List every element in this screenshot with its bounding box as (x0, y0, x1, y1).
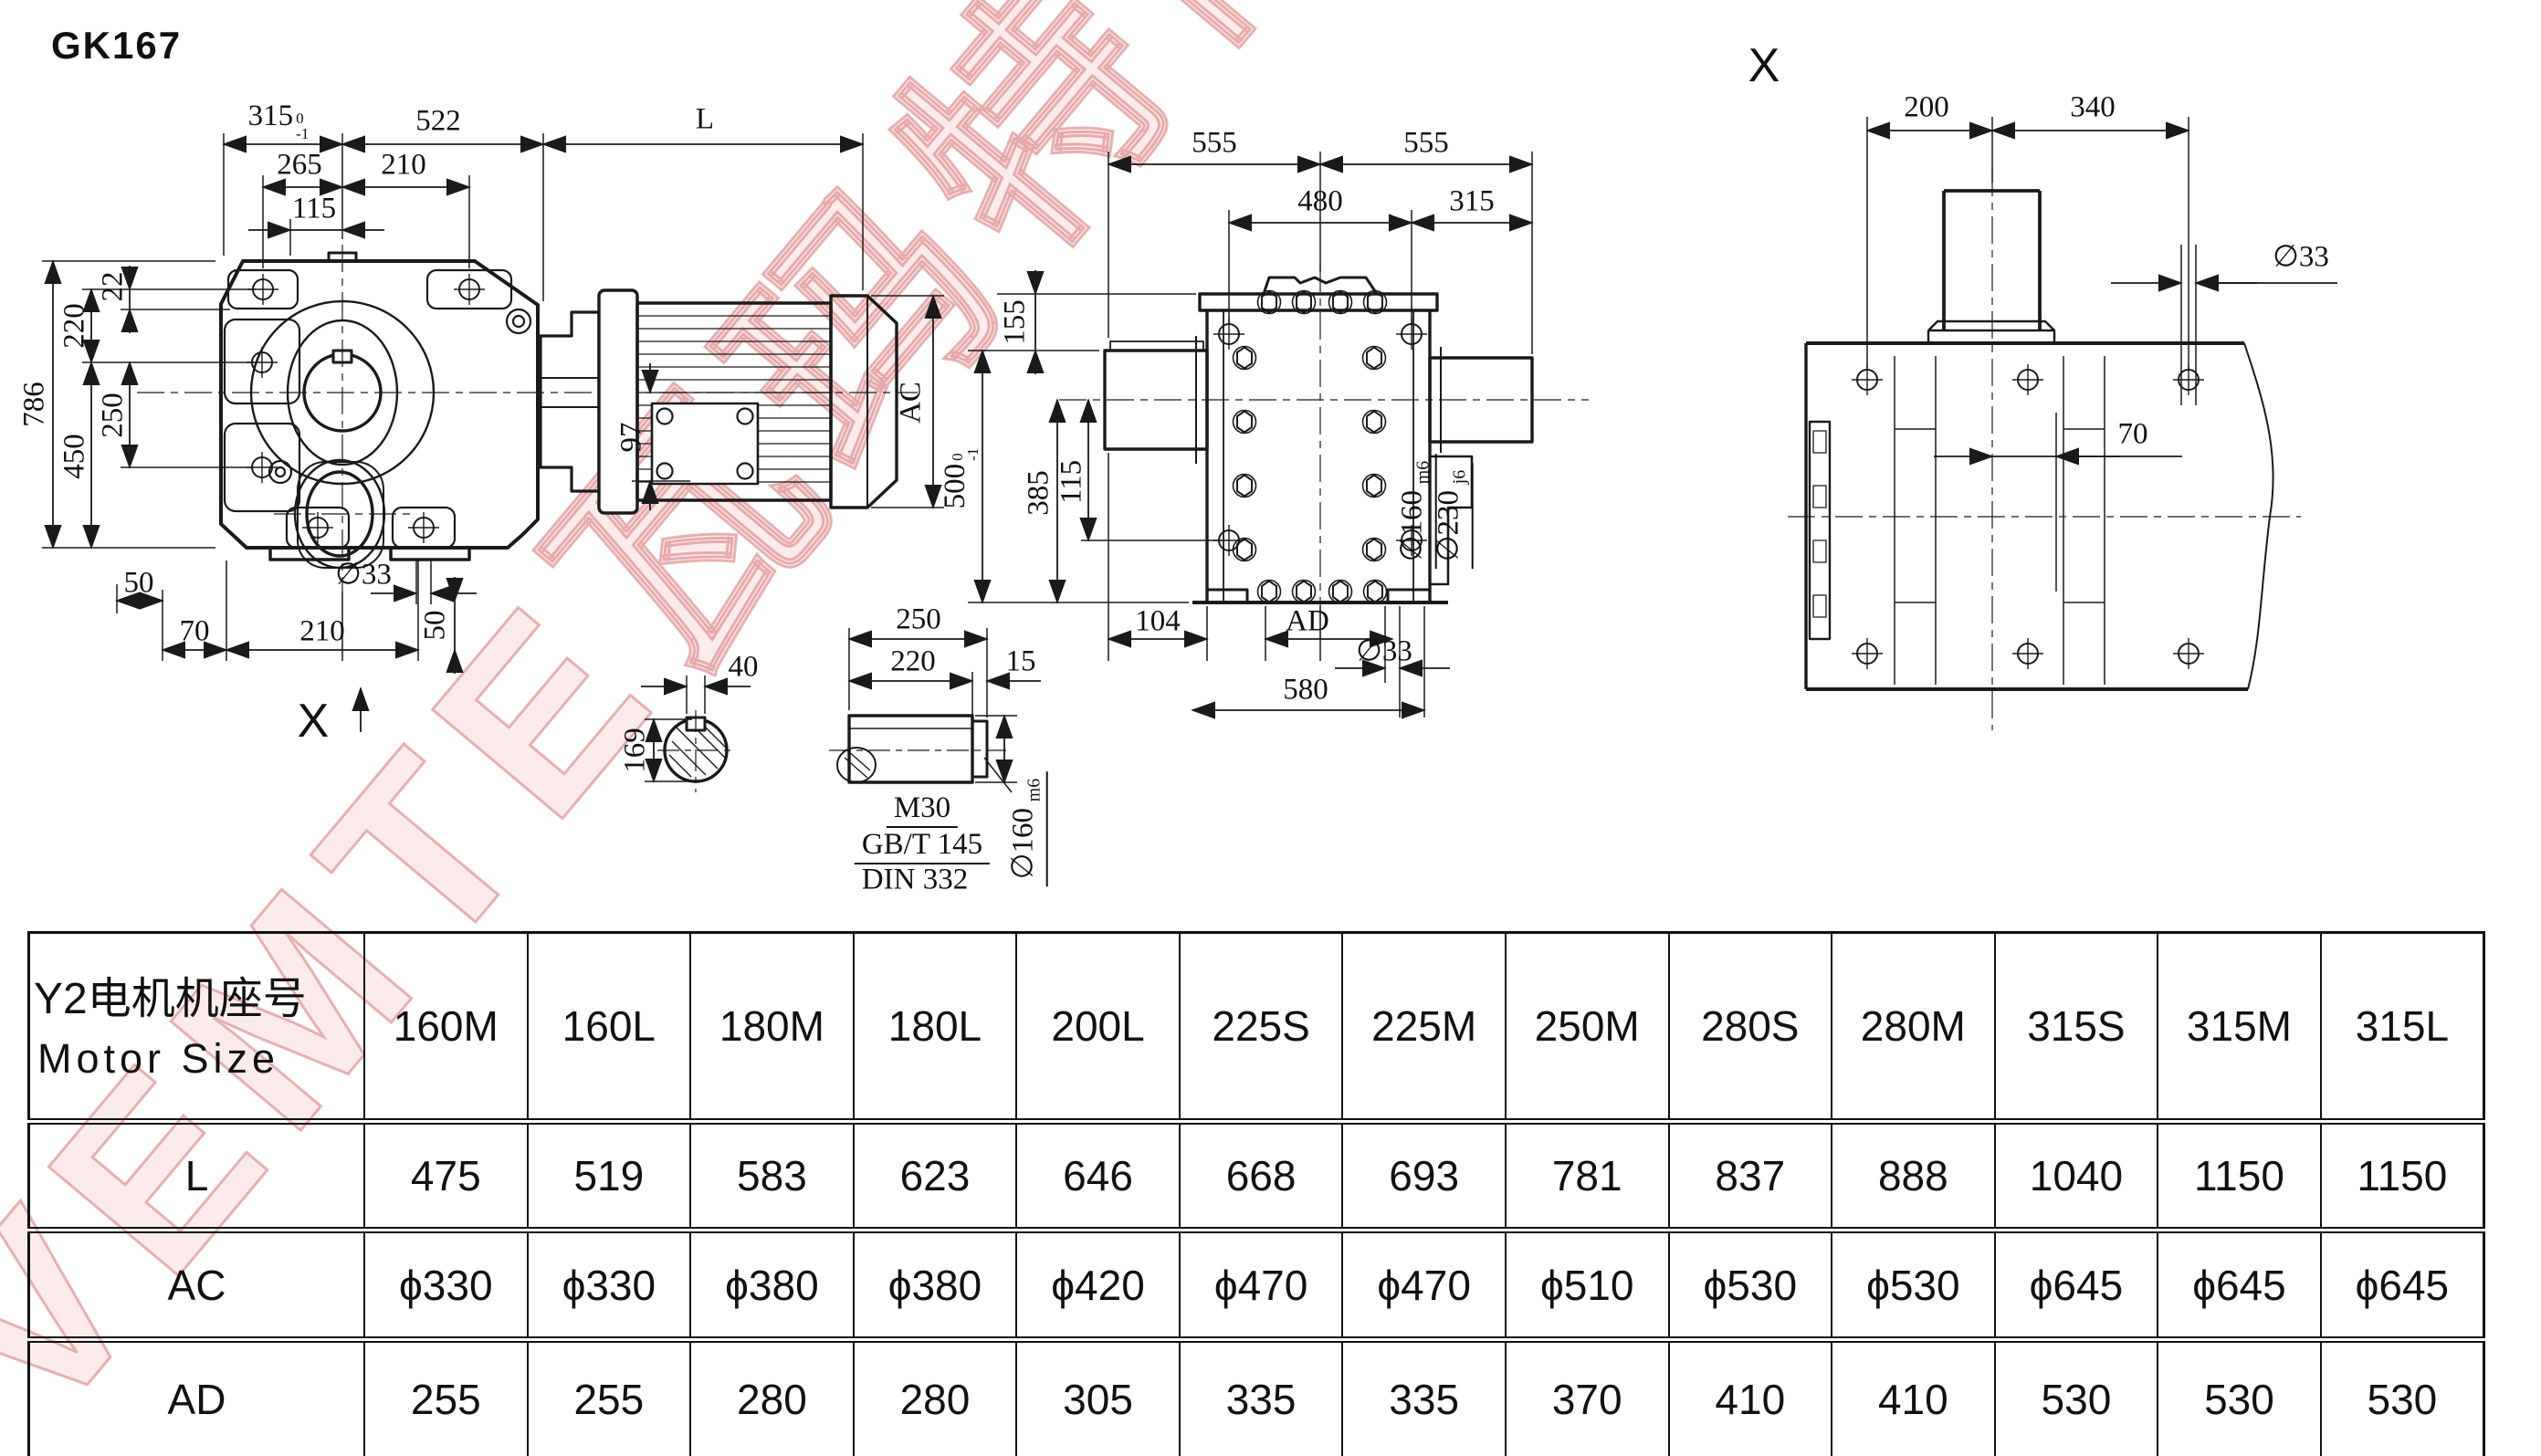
cell-AC-160M: ϕ330 (364, 1231, 528, 1340)
dim-xview-dia33: ∅33 (2273, 243, 2329, 273)
dim-xview-70: 70 (2118, 420, 2148, 450)
dim-front-210: 210 (381, 151, 426, 181)
dim-xview-200: 200 (1904, 93, 1949, 123)
note-shaft-thread-m30: M30 (887, 793, 958, 828)
cell-L-250M: 781 (1506, 1122, 1669, 1231)
dim-side-385: 385 (1024, 470, 1055, 516)
cell-L-280S: 837 (1669, 1122, 1832, 1231)
cell-L-180M: 583 (690, 1122, 854, 1231)
note-shaft-gbt145: GB/T 145 (855, 830, 990, 864)
dim-shaft-15: 15 (1006, 647, 1036, 677)
x-view (1788, 169, 2301, 730)
cell-AD-200L: 305 (1016, 1340, 1180, 1456)
cell-L-315S: 1040 (1995, 1122, 2158, 1231)
dim-front-265: 265 (277, 151, 322, 181)
cell-AD-225S: 335 (1180, 1340, 1343, 1456)
cell-AC-315L: ϕ645 (2321, 1231, 2484, 1340)
column-header-225M: 225M (1342, 933, 1506, 1122)
cell-AC-280M: ϕ530 (1832, 1231, 1995, 1340)
column-header-280M: 280M (1832, 933, 1995, 1122)
column-header-315M: 315M (2158, 933, 2321, 1122)
cell-L-200L: 646 (1016, 1122, 1180, 1231)
column-header-160L: 160L (528, 933, 691, 1122)
cell-L-225M: 693 (1342, 1122, 1506, 1231)
dim-front-97: 97 (617, 423, 647, 453)
column-header-315S: 315S (1995, 933, 2158, 1122)
column-header-225S: 225S (1180, 933, 1343, 1122)
column-header-250M: 250M (1506, 933, 1669, 1122)
dim-xview-340: 340 (2070, 93, 2116, 123)
table-row-AD: AD25525528028030533533537041041053053053… (29, 1340, 2484, 1456)
table-row-L: L475519583623646668693781837888104011501… (29, 1122, 2484, 1231)
dim-front-220: 220 (60, 303, 90, 349)
motor-size-table: Y2电机机座号Motor Size160M160L180M180L200L225… (27, 931, 2485, 1456)
table-header-row: Y2电机机座号Motor Size160M160L180M180L200L225… (29, 933, 2484, 1122)
dim-side-555-left: 555 (1192, 129, 1237, 159)
cell-L-160L: 519 (528, 1122, 691, 1231)
dim-front-L: L (696, 105, 714, 135)
dim-side-500: 5000-1 (940, 448, 981, 509)
cell-AD-225M: 335 (1342, 1340, 1506, 1456)
dim-shaft-dia160-m6: ∅160 m6 (1009, 771, 1048, 886)
cell-L-315L: 1150 (2321, 1122, 2484, 1231)
row-label-AD: AD (29, 1340, 365, 1456)
dim-side-555-right: 555 (1403, 129, 1449, 159)
dim-front-dia33: ∅33 (335, 560, 392, 591)
dim-front-450: 450 (60, 434, 90, 479)
cell-AD-250M: 370 (1506, 1340, 1669, 1456)
dim-front-50-left: 50 (124, 569, 154, 599)
view-arrow-x-label: X (298, 697, 330, 745)
column-header-160M: 160M (364, 933, 528, 1122)
column-header-280S: 280S (1669, 933, 1832, 1122)
dim-side-dia160-m6: ∅160 m6 (1398, 454, 1437, 569)
dim-side-315: 315 (1449, 187, 1495, 217)
dim-shaft-220: 220 (890, 647, 936, 677)
cell-AC-160L: ϕ330 (528, 1231, 691, 1340)
cell-AD-180L: 280 (854, 1340, 1017, 1456)
dim-shaft-40: 40 (729, 653, 759, 683)
cell-AC-180L: ϕ380 (854, 1231, 1017, 1340)
dim-front-786: 786 (20, 382, 50, 427)
cell-AC-315M: ϕ645 (2158, 1231, 2321, 1340)
cell-AD-315S: 530 (1995, 1340, 2158, 1456)
cell-L-280M: 888 (1832, 1122, 1995, 1231)
cell-AD-180M: 280 (690, 1340, 854, 1456)
table-row-AC: ACϕ330ϕ330ϕ380ϕ380ϕ420ϕ470ϕ470ϕ510ϕ530ϕ5… (29, 1231, 2484, 1340)
cell-AD-280S: 410 (1669, 1340, 1832, 1456)
gearbox-drawing-page: VEMTE瓦玛特传动 (0, 0, 2541, 1456)
side-view (1059, 265, 1589, 639)
dim-front-70: 70 (180, 617, 210, 647)
column-header-200L: 200L (1016, 933, 1180, 1122)
row-label-L: L (29, 1122, 365, 1231)
dim-shaft-169: 169 (621, 728, 651, 773)
note-shaft-din332: DIN 332 (862, 865, 968, 896)
motor-size-label-en: Motor Size (30, 1032, 363, 1086)
dim-front-22: 22 (99, 272, 129, 302)
dim-side-104: 104 (1135, 607, 1181, 637)
cell-AC-200L: ϕ420 (1016, 1231, 1180, 1340)
cell-L-160M: 475 (364, 1122, 528, 1231)
table-header-motor-size: Y2电机机座号Motor Size (29, 933, 365, 1122)
cell-AD-160M: 255 (364, 1340, 528, 1456)
motor-size-label-cn: Y2电机机座号 (30, 967, 363, 1032)
dim-side-580: 580 (1283, 676, 1328, 706)
cell-AC-225S: ϕ470 (1180, 1231, 1343, 1340)
dim-front-115: 115 (292, 194, 336, 225)
column-header-315L: 315L (2321, 933, 2484, 1122)
dim-side-155: 155 (1001, 299, 1031, 345)
dim-front-522: 522 (415, 107, 461, 137)
x-view-label: X (1748, 42, 1780, 89)
x-view-dimensions (1867, 117, 2337, 592)
dim-front-250: 250 (99, 393, 129, 438)
dim-front-50-bottom: 50 (421, 611, 451, 641)
cell-L-180L: 623 (854, 1122, 1017, 1231)
drawing-title: GK167 (51, 24, 182, 68)
cell-L-315M: 1150 (2158, 1122, 2321, 1231)
dim-side-dia230-j6: ∅230 j6 (1434, 463, 1474, 569)
cell-AC-280S: ϕ530 (1669, 1231, 1832, 1340)
dim-side-dia33: ∅33 (1356, 637, 1412, 667)
dim-front-315: 3150-1 (248, 101, 310, 141)
dim-motor-AC: AC (897, 382, 927, 424)
dim-side-115: 115 (1057, 460, 1087, 504)
column-header-180M: 180M (690, 933, 854, 1122)
dim-side-480: 480 (1297, 187, 1343, 217)
dim-side-AD: AD (1286, 607, 1329, 637)
cell-AD-160L: 255 (528, 1340, 691, 1456)
cell-AC-225M: ϕ470 (1342, 1231, 1506, 1340)
cell-AC-315S: ϕ645 (1995, 1231, 2158, 1340)
cell-AD-280M: 410 (1832, 1340, 1995, 1456)
cell-L-225S: 668 (1180, 1122, 1343, 1231)
row-label-AC: AC (29, 1231, 365, 1340)
cell-AD-315M: 530 (2158, 1340, 2321, 1456)
dim-front-210b: 210 (299, 617, 345, 647)
cell-AC-180M: ϕ380 (690, 1231, 854, 1340)
column-header-180L: 180L (854, 933, 1017, 1122)
cell-AC-250M: ϕ510 (1506, 1231, 1669, 1340)
cell-AD-315L: 530 (2321, 1340, 2484, 1456)
dim-shaft-250: 250 (896, 605, 941, 635)
